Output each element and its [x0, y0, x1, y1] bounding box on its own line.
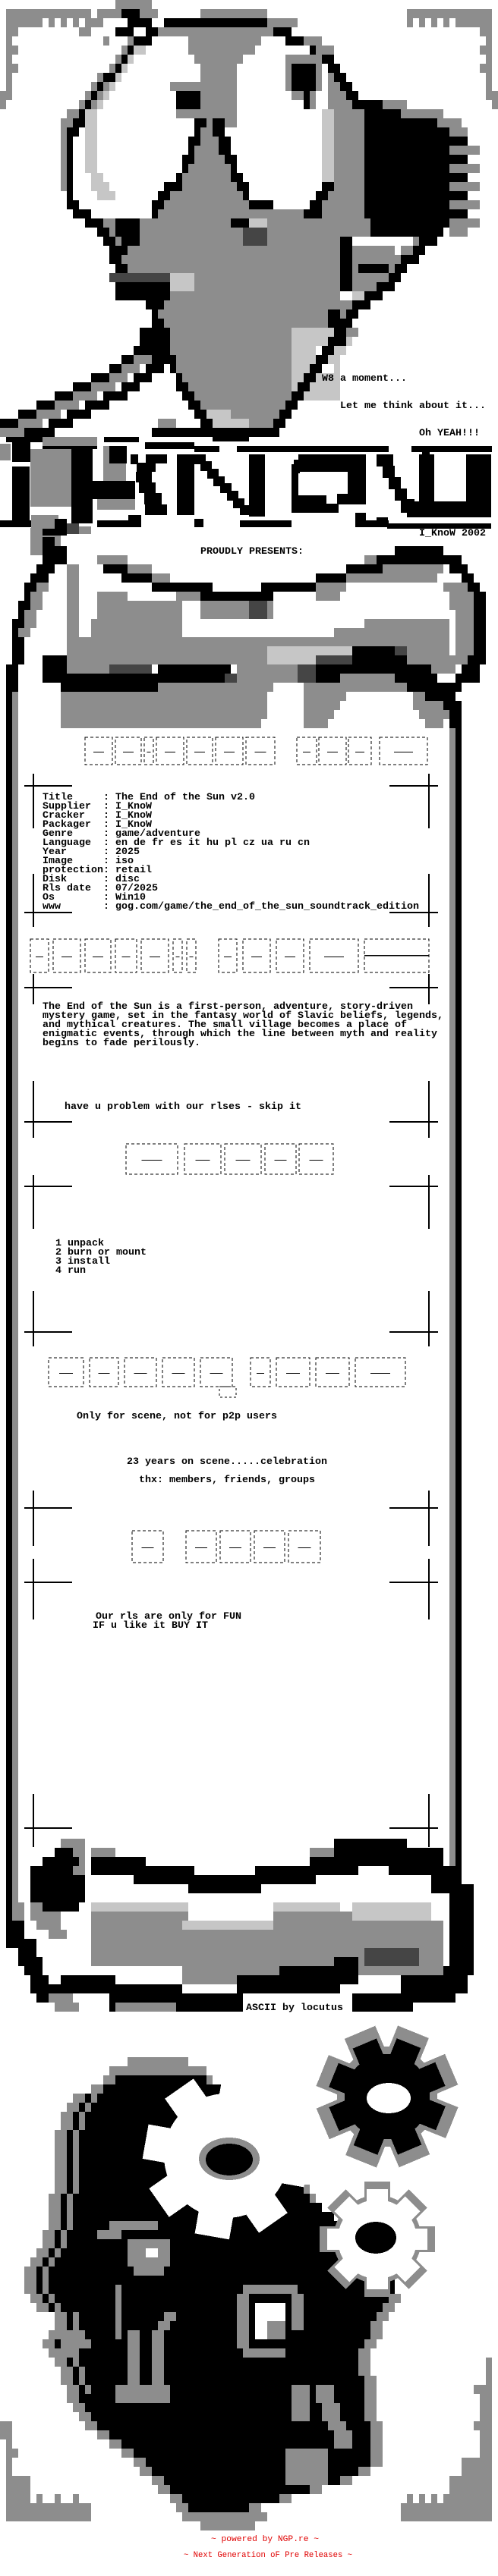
svg-text:W8 a moment...: W8 a moment... — [322, 373, 407, 385]
svg-text:Oh YEAH!!!: Oh YEAH!!! — [419, 428, 480, 439]
svg-text:~ powered by NGP.re ~: ~ powered by NGP.re ~ — [211, 2535, 319, 2544]
svg-text:ASCII by locutus: ASCII by locutus — [246, 2003, 343, 2014]
svg-text:Let me think about it...: Let me think about it... — [340, 401, 486, 412]
svg-text:~ Next Generation oF Pre Relea: ~ Next Generation oF Pre Releases ~ — [184, 2551, 352, 2560]
svg-text:begins to fade perilously.: begins to fade perilously. — [43, 1038, 200, 1049]
svg-text:I_KnoW 2002: I_KnoW 2002 — [419, 528, 486, 539]
svg-text:thx: members, friends, groups: thx: members, friends, groups — [139, 1475, 315, 1486]
svg-text:Only for scene, not for p2p us: Only for scene, not for p2p users — [77, 1411, 277, 1422]
svg-text:IF u like it BUY IT: IF u like it BUY IT — [93, 1620, 208, 1632]
svg-text:23 years on scene.....celebrat: 23 years on scene.....celebration — [127, 1456, 327, 1468]
svg-text:www : gog.com/game/the_e: www : gog.com/game/the_end_of_the_sun_so… — [43, 901, 419, 913]
svg-text:have u problem with our rlses: have u problem with our rlses - skip it — [65, 1101, 301, 1113]
svg-text:PROUDLY PRESENTS:: PROUDLY PRESENTS: — [200, 546, 304, 558]
svg-text:4 run: 4 run — [55, 1265, 86, 1277]
